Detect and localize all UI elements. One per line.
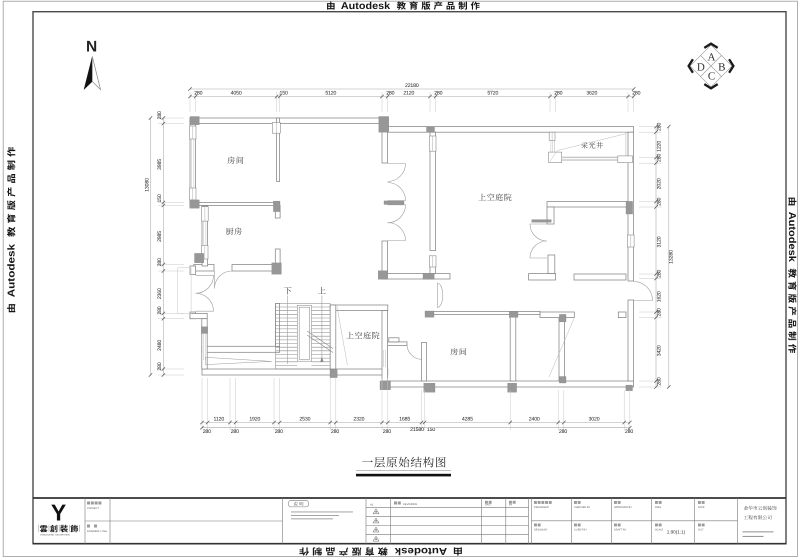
svg-text:3020: 3020 [589,417,600,423]
svg-text:CHECKED BY: CHECKED BY [574,506,591,509]
svg-text:1:90(1:1): 1:90(1:1) [667,530,686,535]
svg-text:Y: Y [51,500,66,526]
svg-text:2530: 2530 [299,417,310,423]
svg-text:280: 280 [157,362,163,370]
svg-text:280: 280 [386,90,394,96]
svg-text:2020: 2020 [656,178,662,189]
svg-text:150: 150 [157,194,163,202]
svg-text:280: 280 [656,197,662,205]
svg-text:280: 280 [656,308,662,316]
svg-text:A: A [708,52,716,64]
svg-text:280: 280 [231,429,239,435]
svg-text:13080: 13080 [144,178,150,192]
svg-text:D: D [697,61,705,73]
svg-text:1685: 1685 [399,417,410,423]
svg-text:PROJECT: PROJECT [87,507,100,510]
svg-text:B: B [718,61,725,73]
svg-text:22180: 22180 [405,83,419,89]
svg-text:280: 280 [625,429,633,435]
svg-text:1220: 1220 [656,141,662,152]
svg-text:2320: 2320 [353,417,364,423]
svg-text:280: 280 [194,90,202,96]
svg-text:280: 280 [554,90,562,96]
svg-text:V1: V1 [370,504,374,507]
svg-text:CLIENT BY: CLIENT BY [574,529,587,532]
svg-text:C: C [708,71,715,83]
svg-text:3620: 3620 [586,90,597,96]
svg-text:280: 280 [656,377,662,385]
svg-text:13280: 13280 [669,250,675,264]
svg-text:1620: 1620 [656,291,662,302]
svg-text:Autodesk: Autodesk [394,545,447,556]
svg-text:DATE: DATE [485,503,492,506]
svg-text:DESIGN BY: DESIGN BY [534,529,548,532]
svg-text:3985: 3985 [157,159,163,170]
svg-text:1920: 1920 [249,417,260,423]
svg-text:21580: 21580 [410,427,424,433]
svg-text:3420: 3420 [656,345,662,356]
svg-text:2017: 2017 [698,529,704,532]
svg-text:4285: 4285 [462,417,473,423]
svg-text:2480: 2480 [157,340,163,351]
svg-text:2360: 2360 [157,288,163,299]
svg-text:BY: BY [509,503,513,506]
svg-text:2120: 2120 [403,90,414,96]
svg-text:280: 280 [383,429,391,435]
svg-text:DWG: DWG [655,506,661,509]
svg-text:3120: 3120 [656,236,662,247]
svg-text:280: 280 [656,269,662,277]
svg-text:280: 280 [157,306,163,314]
svg-text:5120: 5120 [325,90,336,96]
svg-text:DRAWING TITLE: DRAWING TITLE [87,530,107,533]
svg-text:Autodesk: Autodesk [7,243,18,297]
svg-text:150: 150 [279,90,287,96]
svg-text:280: 280 [632,90,640,96]
svg-text:280: 280 [559,429,567,435]
svg-text:4050: 4050 [231,90,242,96]
svg-text:280: 280 [656,154,662,162]
svg-text:5720: 5720 [487,90,498,96]
svg-text:REVISIONS: REVISIONS [403,503,417,506]
svg-text:280: 280 [656,123,662,131]
svg-text:SCALE: SCALE [655,529,664,532]
svg-text:280: 280 [434,90,442,96]
svg-text:Autodesk: Autodesk [786,212,797,263]
svg-text:280: 280 [157,258,163,266]
svg-text:280: 280 [157,111,163,119]
svg-text:Autodesk: Autodesk [341,1,391,12]
svg-text:N: N [86,38,97,55]
svg-text:P.MANAGER: P.MANAGER [534,506,549,509]
svg-text:2985: 2985 [157,231,163,242]
svg-text:YUNCHUANG DECORATION: YUNCHUANG DECORATION [40,534,70,537]
svg-text:2400: 2400 [529,417,540,423]
svg-text:280: 280 [331,429,339,435]
svg-text:280: 280 [275,429,283,435]
svg-text:1120: 1120 [214,417,225,423]
svg-text:280: 280 [203,429,211,435]
svg-text:DATE: DATE [698,506,705,509]
svg-text:DRAFT BY: DRAFT BY [614,529,627,532]
svg-text:APPROVED BY: APPROVED BY [614,506,632,509]
